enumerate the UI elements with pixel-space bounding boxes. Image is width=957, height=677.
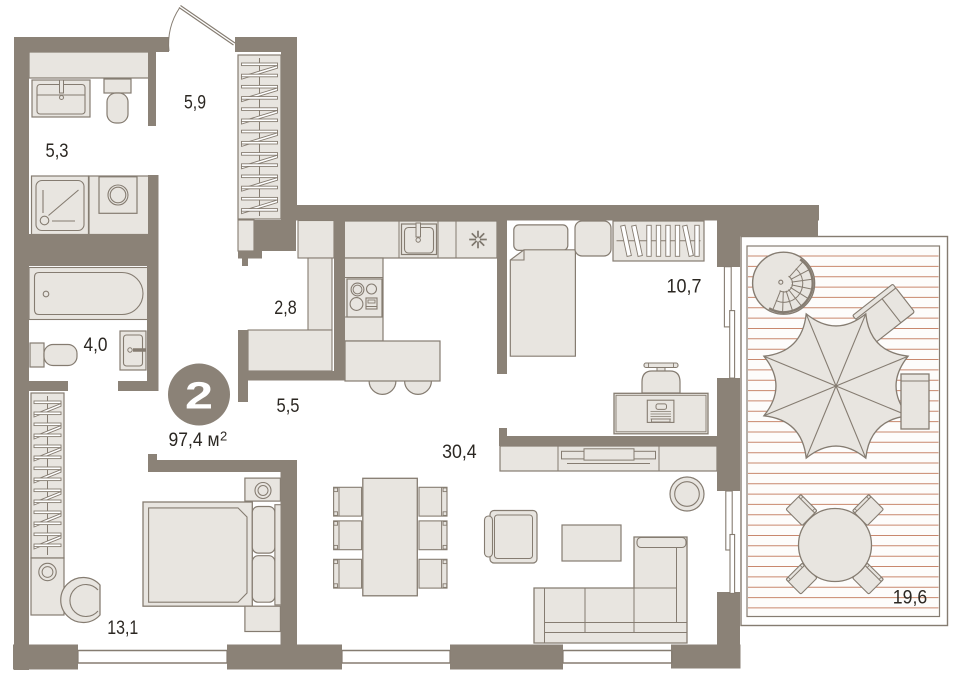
svg-text:4,0: 4,0: [84, 335, 108, 356]
svg-text:2: 2: [220, 429, 227, 444]
svg-text:2,8: 2,8: [274, 298, 296, 319]
svg-text:19,6: 19,6: [893, 588, 927, 609]
svg-text:2: 2: [185, 376, 213, 418]
svg-text:5,5: 5,5: [277, 396, 300, 417]
svg-text:10,7: 10,7: [667, 277, 702, 298]
svg-text:97,4 м: 97,4 м: [169, 429, 220, 451]
svg-text:13,1: 13,1: [107, 618, 138, 639]
svg-text:5,9: 5,9: [184, 93, 206, 114]
svg-text:30,4: 30,4: [442, 442, 477, 463]
svg-text:5,3: 5,3: [46, 141, 69, 162]
